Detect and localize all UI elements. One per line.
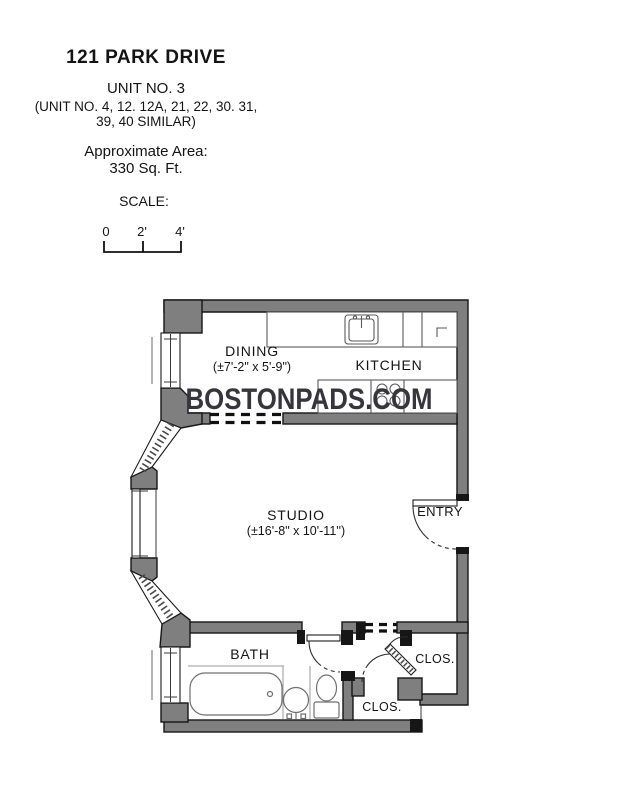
entry-jamb-cap-top xyxy=(456,494,469,501)
unit-number: UNIT NO. 3 xyxy=(107,80,185,97)
wall-bath-bottomleft-block xyxy=(161,703,188,722)
bath-window xyxy=(152,647,180,703)
room-label-kitchen: KITCHEN xyxy=(355,357,422,373)
bay-window-middle xyxy=(132,489,148,558)
watermark-text: BOSTONPADS.COM xyxy=(186,383,433,416)
room-label-dining: DINING xyxy=(225,343,279,359)
opening2-cap-left xyxy=(356,622,365,640)
area-label: Approximate Area: xyxy=(84,143,207,160)
similar-units-line2: 39, 40 SIMILAR) xyxy=(96,114,196,129)
bay-window-upper xyxy=(131,420,181,477)
room-label-bath: BATH xyxy=(230,646,270,662)
wall-bath-bottom xyxy=(164,720,422,732)
wall-topleft-pier xyxy=(164,300,202,333)
floor-plan-canvas: 121 PARK DRIVE UNIT NO. 3 (UNIT NO. 4, 1… xyxy=(0,0,618,800)
bottom-wall-end-cap xyxy=(410,719,422,732)
similar-units-line1: (UNIT NO. 4, 12. 12A, 21, 22, 30. 31, xyxy=(35,99,258,114)
room-label-closet-lower: CLOS. xyxy=(362,700,402,714)
closet-door-lower xyxy=(362,654,390,682)
toilet xyxy=(314,675,339,718)
plan-title: 121 PARK DRIVE xyxy=(66,47,226,68)
bath-sink xyxy=(283,666,310,719)
scale-tick-0: 0 xyxy=(102,224,109,239)
scale-tick-4: 4' xyxy=(175,224,185,239)
bath-door-cap-right xyxy=(341,630,353,645)
opening2-cap-right xyxy=(400,630,412,646)
area-value: 330 Sq. Ft. xyxy=(109,160,182,177)
studio-dimensions: (±16'-8" x 10'-11'') xyxy=(247,524,345,538)
bath-door xyxy=(307,635,340,672)
divider-cap xyxy=(341,671,355,681)
floor-plan-page: 121 PARK DRIVE UNIT NO. 3 (UNIT NO. 4, 1… xyxy=(0,0,618,800)
dining-window xyxy=(152,333,180,388)
room-label-entry: ENTRY xyxy=(417,504,463,519)
wall-closet-stub-right xyxy=(398,678,422,700)
scale-bar: 0 2' 4' xyxy=(102,224,184,252)
wall-studio-bottom-a xyxy=(184,622,302,633)
bath-door-cap-left xyxy=(297,630,305,644)
dashed-opening-studio-hall xyxy=(365,625,397,632)
scale-tick-2: 2' xyxy=(137,224,147,239)
bathtub xyxy=(188,666,284,715)
bay-window-lower xyxy=(131,571,181,624)
dining-dimensions: (±7'-2" x 5'-9") xyxy=(213,360,291,374)
room-label-closet-upper: CLOS. xyxy=(415,652,455,666)
entry-jamb-cap-bottom xyxy=(456,547,469,554)
room-label-studio: STUDIO xyxy=(267,507,325,523)
kitchen-sink xyxy=(345,315,378,344)
scale-label: SCALE: xyxy=(119,193,169,209)
